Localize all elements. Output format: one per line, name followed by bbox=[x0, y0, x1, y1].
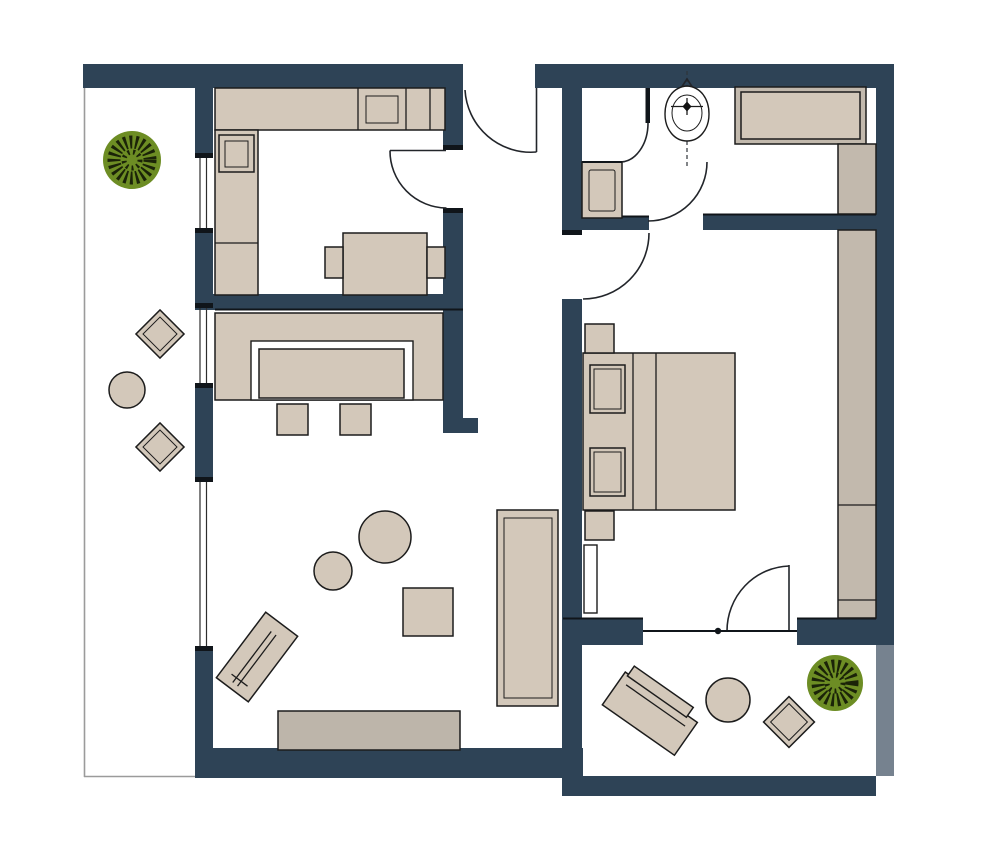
balcony-door-window bbox=[200, 482, 207, 646]
left-wall-segment-3 bbox=[195, 388, 213, 477]
stool-2 bbox=[340, 404, 371, 435]
terrace-bottom-wall bbox=[562, 776, 876, 796]
bedroom-bottom-wall-right bbox=[797, 618, 876, 645]
coffee-table bbox=[259, 349, 404, 398]
kitchen-window bbox=[200, 158, 207, 228]
living-bedroom-wall bbox=[562, 299, 582, 778]
bathroom-cabinet bbox=[838, 144, 876, 214]
hall-bath-wall bbox=[562, 88, 582, 235]
potted-plant bbox=[103, 131, 161, 189]
pillow-2 bbox=[590, 448, 625, 496]
bathtub-basin bbox=[741, 92, 860, 139]
bedroom-door-swing bbox=[583, 233, 649, 299]
daybed bbox=[497, 510, 558, 706]
potted-plant bbox=[807, 655, 863, 711]
hall-living-wall-foot bbox=[463, 418, 478, 433]
window-cap bbox=[195, 153, 213, 158]
right-outer-wall bbox=[876, 64, 894, 645]
bedroom bbox=[583, 230, 876, 618]
balcony-chair-1 bbox=[136, 310, 184, 358]
walls bbox=[83, 64, 894, 796]
dining-chair-left bbox=[325, 247, 343, 278]
terrace-door bbox=[643, 565, 797, 634]
terrace bbox=[602, 655, 863, 755]
top-wall-left bbox=[83, 64, 463, 88]
sun-lounger bbox=[602, 664, 703, 755]
window-cap bbox=[195, 303, 213, 308]
terrace-railing bbox=[876, 645, 894, 776]
radiator bbox=[584, 545, 597, 613]
nightstand-top bbox=[585, 324, 614, 353]
pillow-1 bbox=[590, 365, 625, 413]
window-cap bbox=[195, 228, 213, 233]
bathroom bbox=[582, 71, 876, 218]
kitchen-bottom-wall bbox=[195, 294, 463, 310]
nightstand-bottom bbox=[585, 511, 614, 540]
bedroom-bottom-wall-left bbox=[562, 618, 643, 645]
kitchen bbox=[215, 88, 445, 295]
balcony-side-table bbox=[109, 372, 145, 408]
bedroom-door-jamb bbox=[562, 230, 582, 235]
wardrobe bbox=[838, 230, 876, 618]
dining-table bbox=[343, 233, 427, 295]
terrace-round-table bbox=[706, 678, 750, 722]
kitchen-right-wall-upper bbox=[443, 88, 463, 145]
window-cap bbox=[195, 477, 213, 482]
kitchen-counter bbox=[215, 88, 445, 130]
left-wall-segment-4 bbox=[195, 651, 213, 748]
floor-plan-canvas bbox=[0, 0, 1000, 841]
lounge-chair bbox=[216, 612, 297, 702]
kitchen-door bbox=[390, 151, 447, 209]
entrance-door-swing bbox=[465, 90, 537, 152]
dining-chair-right bbox=[427, 247, 445, 278]
balcony-chair-2 bbox=[136, 423, 184, 471]
bathroom-partition-screen bbox=[646, 88, 651, 123]
bath-bottom-wall bbox=[703, 214, 876, 230]
left-wall-segment-1 bbox=[195, 88, 213, 153]
terrace-chair bbox=[764, 697, 815, 748]
terrace-door-swing bbox=[727, 566, 789, 631]
terrace-door-stop bbox=[715, 628, 721, 634]
pouf-large bbox=[359, 511, 411, 563]
floor-plan-page bbox=[0, 0, 1000, 841]
sideboard bbox=[278, 711, 460, 750]
living-bottom-wall bbox=[195, 748, 583, 778]
living-room bbox=[215, 313, 558, 750]
balcony bbox=[103, 131, 184, 471]
floor-cushion bbox=[403, 588, 453, 636]
pouf-small bbox=[314, 552, 352, 590]
window-cap bbox=[195, 646, 213, 651]
hall-living-wall bbox=[443, 310, 463, 433]
living-room-window bbox=[200, 308, 207, 383]
kitchen-door-swing bbox=[390, 151, 447, 209]
top-wall-right bbox=[535, 64, 894, 88]
window-cap bbox=[195, 383, 213, 388]
wc-partition-door-swing bbox=[620, 123, 648, 162]
kitchen-door-jamb bbox=[443, 145, 463, 150]
left-wall-segment-2 bbox=[195, 233, 213, 303]
entrance-door bbox=[465, 88, 537, 152]
bathroom-door-swing bbox=[648, 162, 707, 221]
stool-1 bbox=[277, 404, 308, 435]
